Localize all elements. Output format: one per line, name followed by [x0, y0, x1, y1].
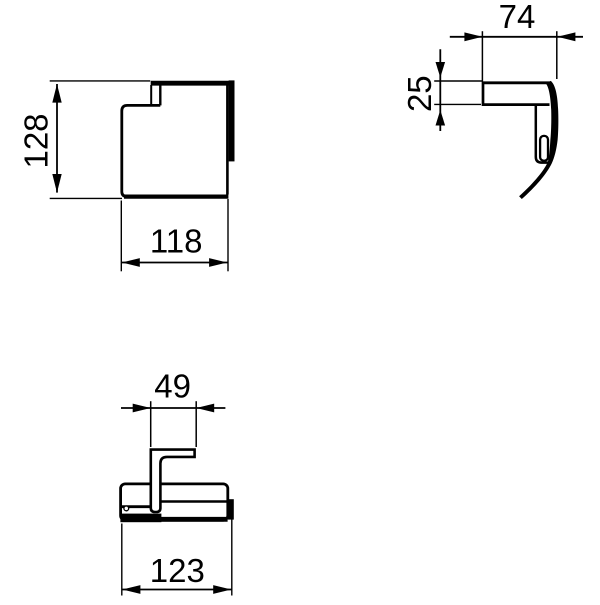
svg-text:118: 118	[150, 223, 203, 260]
svg-text:128: 128	[18, 113, 55, 168]
svg-text:25: 25	[401, 75, 438, 112]
svg-text:74: 74	[499, 0, 536, 35]
svg-text:49: 49	[154, 368, 191, 405]
svg-text:123: 123	[150, 552, 205, 589]
